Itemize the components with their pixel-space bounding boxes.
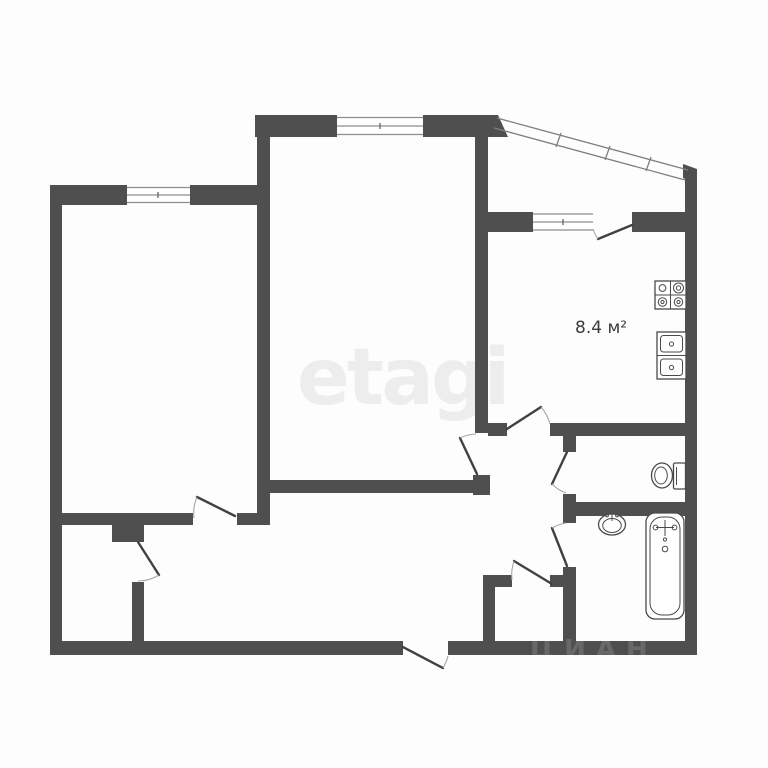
window-left-room xyxy=(127,186,190,204)
wall-leftroom-bottom-a xyxy=(50,513,193,525)
wall-storage-left xyxy=(483,575,495,641)
wall-midroom-bottom xyxy=(257,480,473,493)
wall-right xyxy=(685,170,697,655)
bathtub-icon xyxy=(646,513,684,619)
wall-storage-top-b xyxy=(550,575,576,587)
washbasin-icon xyxy=(599,513,626,535)
wall-midroom-right xyxy=(475,115,488,433)
toilet-icon xyxy=(652,463,686,489)
window-middle-room xyxy=(337,116,423,136)
wall-top-left-a xyxy=(50,185,127,205)
wall-wcbath-left-a xyxy=(563,433,576,452)
wall-left xyxy=(50,185,62,655)
watermark-bottom: ЦИАН xyxy=(530,635,658,665)
stove-icon xyxy=(655,281,686,309)
wall-closet-stub xyxy=(112,525,144,542)
wall-leftroom-bottom-b xyxy=(237,513,270,525)
floor-plan-image: etagi xyxy=(0,0,768,768)
wall-kitchen-bottom-a xyxy=(475,212,533,232)
wall-bottom-left xyxy=(50,641,403,655)
wall-rooms-divider xyxy=(257,115,270,525)
wall-hall-stub xyxy=(488,423,507,436)
window-kitchen xyxy=(533,213,593,231)
wall-midroom-bottom-cap xyxy=(473,475,490,495)
wall-closet-divider xyxy=(132,582,144,641)
double-sink-icon xyxy=(657,332,686,379)
floor-plan-svg: etagi xyxy=(0,0,768,768)
wall-kitchen-bottom-b xyxy=(632,212,685,232)
kitchen-area-label: 8.4 м² xyxy=(575,318,627,338)
